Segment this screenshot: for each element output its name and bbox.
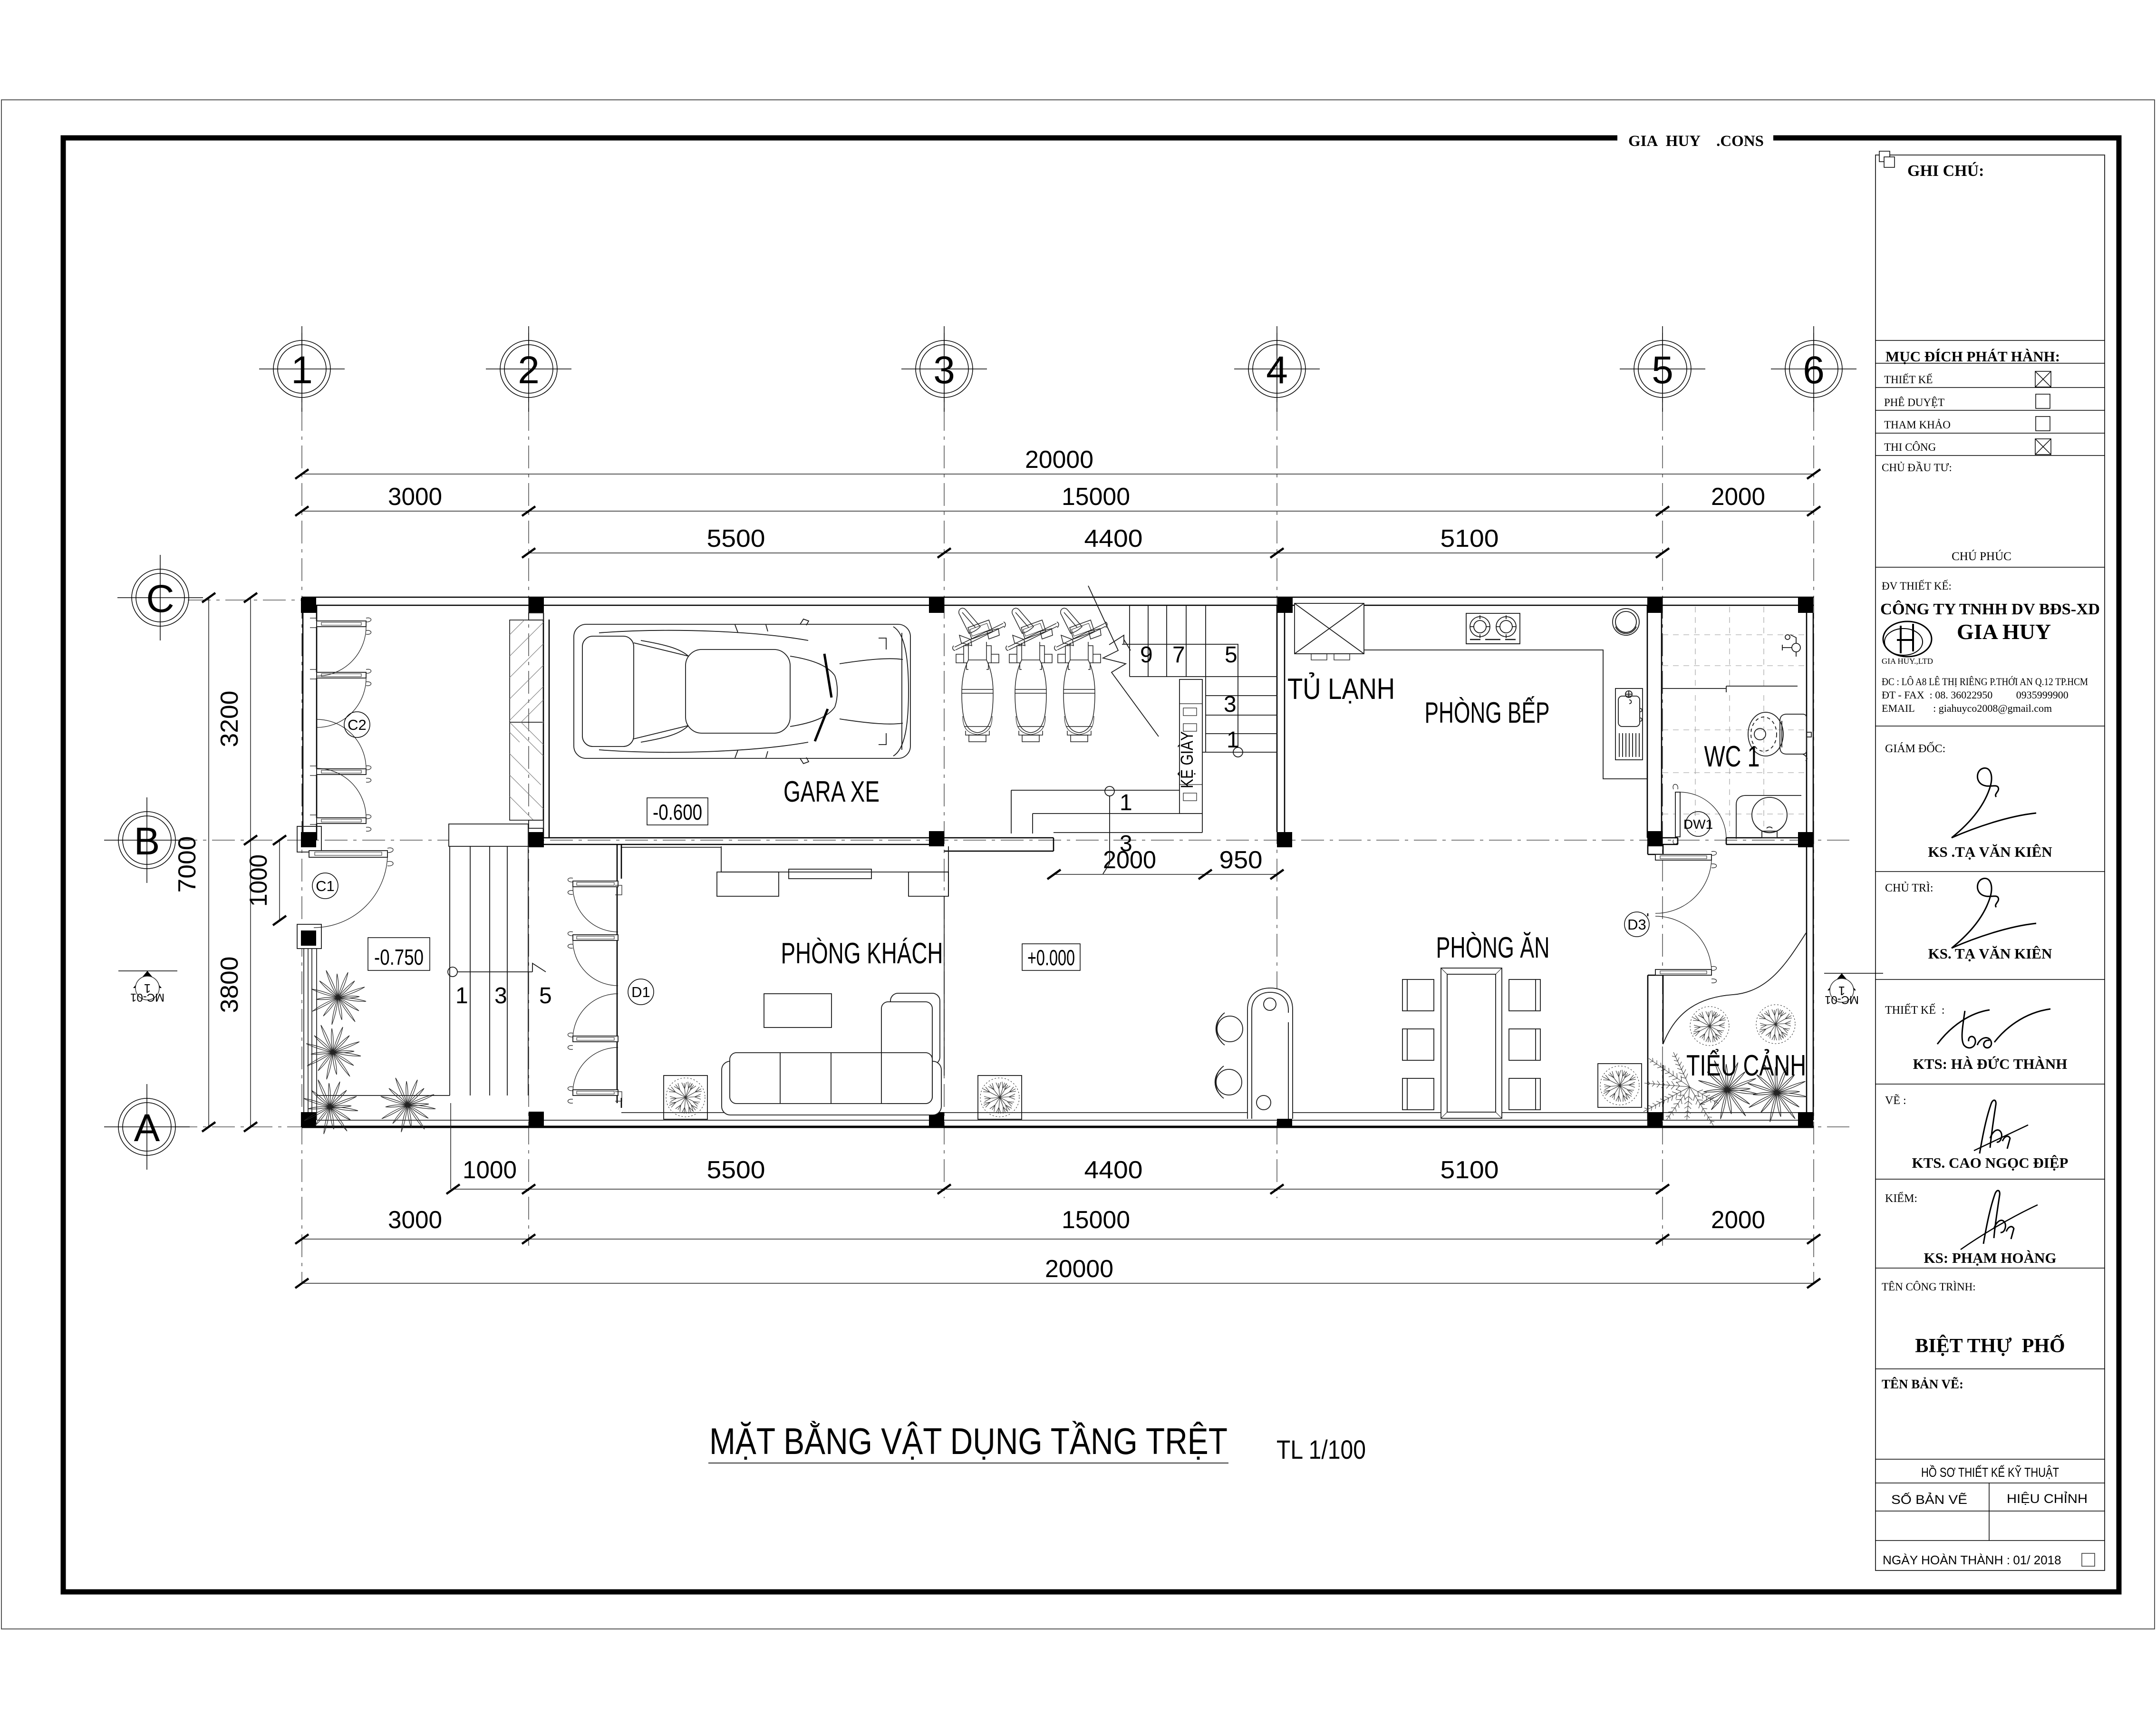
svg-text:TL 1/100: TL 1/100 — [1276, 1434, 1366, 1464]
svg-text:3: 3 — [1224, 692, 1237, 717]
svg-text:KTS: HÀ ĐỨC THÀNH: KTS: HÀ ĐỨC THÀNH — [1913, 1056, 2068, 1072]
svg-text:1000: 1000 — [463, 1156, 517, 1184]
svg-text:B: B — [134, 820, 160, 863]
svg-text:CÔNG TY TNHH DV BĐS-XD: CÔNG TY TNHH DV BĐS-XD — [1880, 600, 2100, 618]
svg-text:PHÒNG KHÁCH: PHÒNG KHÁCH — [781, 937, 943, 970]
svg-text:KỆ GIÀY: KỆ GIÀY — [1177, 731, 1197, 788]
svg-text:5500: 5500 — [707, 525, 765, 552]
svg-text:ĐV THIẾT KẾ:: ĐV THIẾT KẾ: — [1882, 580, 1952, 592]
svg-text:CHỦ ĐẦU TƯ:: CHỦ ĐẦU TƯ: — [1882, 461, 1952, 474]
svg-text:VẼ :: VẼ : — [1885, 1095, 1906, 1107]
svg-text:CHÚ PHÚC: CHÚ PHÚC — [1952, 550, 2011, 563]
svg-text:4: 4 — [1266, 349, 1288, 392]
svg-text:TỦ LẠNH: TỦ LẠNH — [1287, 673, 1395, 706]
svg-text:20000: 20000 — [1025, 446, 1093, 474]
svg-text:-0.600: -0.600 — [653, 800, 702, 824]
svg-text:GIA HUY .CONS: GIA HUY .CONS — [1628, 133, 1764, 150]
svg-text:PHÊ DUYỆT: PHÊ DUYỆT — [1884, 397, 1944, 408]
svg-text:MC-01: MC-01 — [130, 991, 164, 1004]
svg-text:2000: 2000 — [1711, 1206, 1765, 1234]
svg-text:3000: 3000 — [388, 1206, 442, 1234]
svg-text:15000: 15000 — [1062, 1206, 1130, 1234]
svg-text:9: 9 — [1140, 642, 1153, 668]
svg-text:3200: 3200 — [216, 691, 243, 747]
svg-text:THI CÔNG: THI CÔNG — [1884, 441, 1936, 453]
svg-text:GIÁM ĐỐC:: GIÁM ĐỐC: — [1885, 742, 1945, 755]
svg-text:WC 1: WC 1 — [1704, 740, 1760, 773]
svg-text:6: 6 — [1803, 349, 1825, 392]
svg-text:CHỦ TRÌ:: CHỦ TRÌ: — [1885, 882, 1934, 894]
svg-text:-0.750: -0.750 — [374, 945, 424, 969]
svg-text:2: 2 — [518, 349, 540, 392]
svg-text:3800: 3800 — [216, 957, 243, 1013]
svg-text:1: 1 — [1227, 727, 1239, 753]
svg-text:3: 3 — [933, 349, 955, 392]
svg-text:HIỆU CHỈNH: HIỆU CHỈNH — [2007, 1491, 2088, 1506]
svg-text:DW1: DW1 — [1683, 817, 1713, 832]
svg-text:C: C — [146, 577, 174, 620]
svg-text:PHÒNG ĂN: PHÒNG ĂN — [1436, 931, 1550, 964]
svg-text:PHÒNG BẾP: PHÒNG BẾP — [1425, 697, 1550, 729]
svg-text:5100: 5100 — [1441, 1156, 1499, 1184]
svg-text:TÊN BẢN VẼ:: TÊN BẢN VẼ: — [1882, 1377, 1963, 1391]
svg-text:ĐC : LÔ A8 LÊ THỊ RIÊNG P.THỚI: ĐC : LÔ A8 LÊ THỊ RIÊNG P.THỚI AN Q.12 T… — [1882, 676, 2088, 688]
svg-text:5: 5 — [1652, 349, 1673, 392]
svg-text:4400: 4400 — [1084, 525, 1143, 552]
svg-text:20000: 20000 — [1045, 1255, 1113, 1283]
svg-text:GIA HUY.,LTD: GIA HUY.,LTD — [1882, 657, 1933, 666]
svg-text:7: 7 — [1172, 642, 1185, 668]
svg-text:THIẾT KẾ: THIẾT KẾ — [1884, 373, 1933, 386]
svg-text:THAM KHẢO: THAM KHẢO — [1884, 419, 1951, 431]
svg-text:BIỆT THỰ PHỐ: BIỆT THỰ PHỐ — [1915, 1334, 2065, 1357]
svg-text:SỐ BẢN VẼ: SỐ BẢN VẼ — [1891, 1492, 1967, 1507]
svg-text:5: 5 — [1225, 642, 1238, 668]
svg-text:MẶT BẰNG VẬT DỤNG TẦNG TRỆT: MẶT BẰNG VẬT DỤNG TẦNG TRỆT — [709, 1420, 1228, 1462]
svg-text:A: A — [134, 1106, 160, 1150]
svg-text:1: 1 — [291, 349, 313, 392]
svg-text:1000: 1000 — [245, 854, 272, 907]
svg-text:5100: 5100 — [1441, 525, 1499, 552]
svg-text:KS .TẠ VĂN KIÊN: KS .TẠ VĂN KIÊN — [1928, 843, 2052, 860]
svg-text:5500: 5500 — [707, 1156, 765, 1184]
svg-text:D3: D3 — [1627, 916, 1646, 933]
svg-text:C1: C1 — [316, 878, 335, 894]
svg-text:KS: PHẠM HOÀNG: KS: PHẠM HOÀNG — [1924, 1250, 2057, 1266]
svg-text:3: 3 — [494, 983, 507, 1008]
svg-text:MỤC ĐÍCH PHÁT HÀNH:: MỤC ĐÍCH PHÁT HÀNH: — [1885, 348, 2060, 365]
svg-text:5: 5 — [539, 983, 552, 1008]
svg-text:GARA XE: GARA XE — [783, 775, 880, 808]
svg-text:3000: 3000 — [388, 483, 442, 511]
svg-text:ĐT - FAX : 08. 36022950: ĐT - FAX : 08. 36022950 0935999900 — [1882, 689, 2069, 701]
svg-text:GHI CHÚ:: GHI CHÚ: — [1907, 162, 1984, 180]
svg-text:KTS. CAO NGỌC ĐIỆP: KTS. CAO NGỌC ĐIỆP — [1912, 1154, 2069, 1171]
svg-text:KS. TẠ VĂN KIÊN: KS. TẠ VĂN KIÊN — [1928, 945, 2052, 962]
svg-text:4400: 4400 — [1084, 1156, 1143, 1184]
svg-text:MC-01: MC-01 — [1825, 993, 1859, 1006]
svg-text:HỒ SƠ THIẾT KẾ KỸ THUẬT: HỒ SƠ THIẾT KẾ KỸ THUẬT — [1921, 1465, 2059, 1480]
svg-text:NGÀY HOÀN THÀNH :: NGÀY HOÀN THÀNH : — [1883, 1553, 2010, 1567]
svg-text:KIỂM:: KIỂM: — [1885, 1192, 1917, 1205]
svg-text:GIA HUY: GIA HUY — [1957, 620, 2051, 644]
svg-text:15000: 15000 — [1062, 483, 1130, 511]
svg-text:D1: D1 — [631, 984, 650, 1000]
svg-text:THIẾT KẾ :: THIẾT KẾ : — [1885, 1004, 1945, 1017]
svg-text:+0.000: +0.000 — [1027, 945, 1075, 970]
svg-text:1: 1 — [455, 983, 468, 1008]
svg-text:EMAIL : giahuyco2008@gma: EMAIL : giahuyco2008@gmail.com — [1882, 702, 2052, 714]
svg-text:950: 950 — [1219, 846, 1263, 874]
svg-text:1: 1 — [1120, 790, 1132, 815]
svg-text:TIỂU CẢNH: TIỂU CẢNH — [1686, 1049, 1806, 1082]
svg-text:C2: C2 — [348, 717, 367, 733]
svg-text:3: 3 — [1120, 831, 1132, 856]
svg-text:01/ 2018: 01/ 2018 — [2013, 1553, 2061, 1567]
svg-text:2000: 2000 — [1711, 483, 1765, 511]
svg-text:TÊN CÔNG TRÌNH:: TÊN CÔNG TRÌNH: — [1882, 1280, 1976, 1293]
svg-text:7000: 7000 — [174, 836, 201, 893]
